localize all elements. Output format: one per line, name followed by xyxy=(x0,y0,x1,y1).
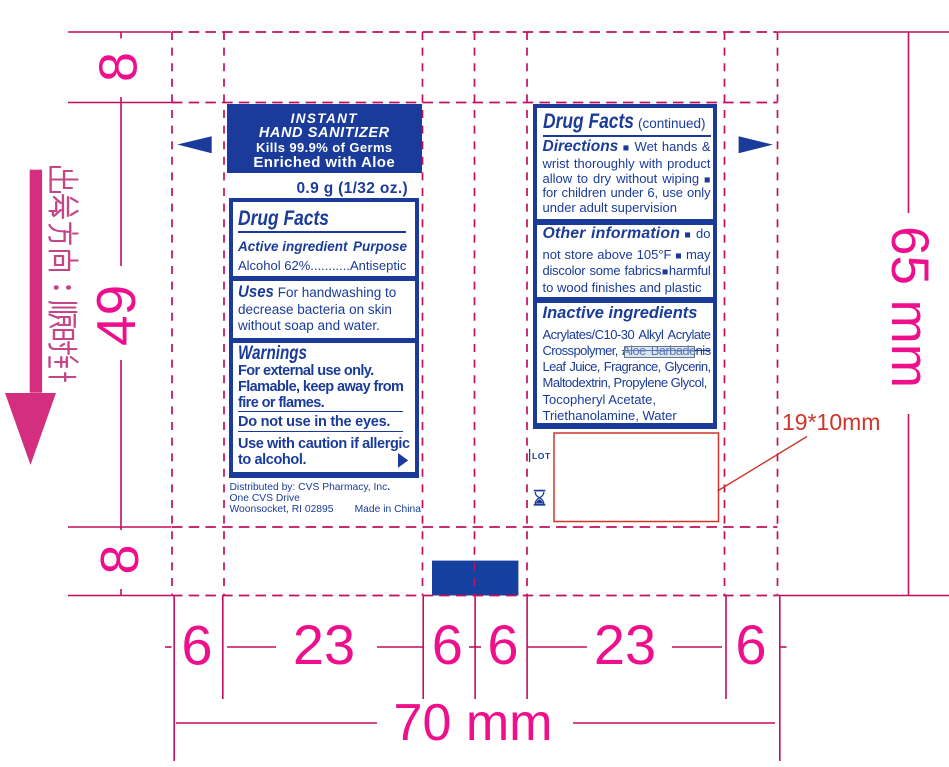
svg-text:LOT: LOT xyxy=(532,451,551,461)
svg-text:70 mm: 70 mm xyxy=(394,694,553,752)
svg-text:6: 6 xyxy=(735,613,766,676)
svg-text:49: 49 xyxy=(85,285,147,346)
svg-text:8: 8 xyxy=(89,52,149,82)
svg-text:19*10mm: 19*10mm xyxy=(782,409,880,435)
svg-text:23: 23 xyxy=(293,613,355,676)
svg-text:8: 8 xyxy=(90,544,150,574)
svg-text:6: 6 xyxy=(432,613,463,676)
svg-text:23: 23 xyxy=(594,613,656,676)
svg-text:65 mm: 65 mm xyxy=(880,226,939,388)
svg-text:6: 6 xyxy=(487,613,518,676)
svg-text:6: 6 xyxy=(181,614,212,677)
